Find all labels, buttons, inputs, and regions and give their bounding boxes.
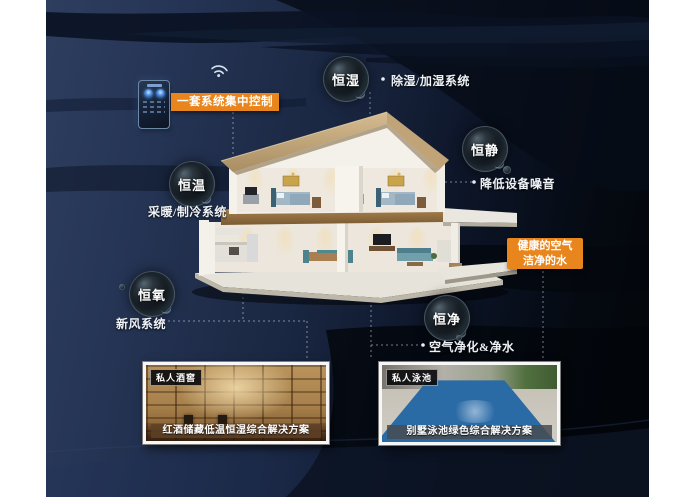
bubble-constant-purity: 恒净 [424, 295, 470, 341]
phone-row [143, 106, 165, 108]
health-badge-line2: 洁净的水 [507, 254, 583, 269]
note-reduce-noise: 降低设备噪音 [480, 175, 555, 192]
phone-row [143, 101, 165, 103]
card-caption: 别墅泳池绿色综合解决方案 [387, 425, 552, 439]
bubble-label: 恒温 [178, 175, 206, 194]
card-tag: 私人酒窖 [150, 369, 202, 386]
card-caption: 红酒储藏低温恒湿综合解决方案 [151, 424, 321, 438]
phone-row [143, 111, 165, 113]
bubble-constant-temperature: 恒温 [169, 161, 215, 207]
water-shine [449, 400, 502, 423]
health-badge-line1: 健康的空气 [507, 239, 583, 254]
bubble-label: 恒氧 [138, 285, 166, 304]
note-fresh-air: 新风系统 [116, 315, 166, 332]
satellite-bubble [119, 284, 125, 290]
phone-dial-buttons [139, 89, 169, 98]
smart-control-phone-icon [138, 80, 170, 129]
bubble-constant-oxygen: 恒氧 [129, 271, 175, 317]
bubble-label: 恒湿 [332, 70, 360, 89]
card-tag: 私人泳池 [386, 369, 438, 386]
health-air-water-badge: 健康的空气 洁净的水 [507, 238, 583, 269]
note-heating-cooling: 采暖/制冷系统 [148, 203, 227, 220]
note-dehumidify-humidify: 除湿/加湿系统 [391, 72, 470, 89]
control-system-badge: 一套系统集中控制 [171, 93, 279, 111]
bubble-constant-quiet: 恒静 [462, 126, 508, 172]
note-air-water-purify: 空气净化&净水 [429, 338, 515, 355]
wifi-icon [208, 62, 231, 85]
bubble-label: 恒静 [471, 140, 499, 159]
phone-header-bar [147, 84, 162, 87]
wine-cellar-card: 私人酒窖 红酒储藏低温恒湿综合解决方案 [143, 362, 329, 444]
poster-canvas: 一套系统集中控制 健康的空气 洁净的水 恒湿 恒静 恒温 恒氧 恒净 除湿/加湿… [0, 0, 700, 497]
satellite-bubble [503, 166, 511, 174]
bubble-label: 恒净 [433, 309, 461, 328]
pool-card: 私人泳池 别墅泳池绿色综合解决方案 [379, 362, 560, 445]
bubble-constant-humidity: 恒湿 [323, 56, 369, 102]
